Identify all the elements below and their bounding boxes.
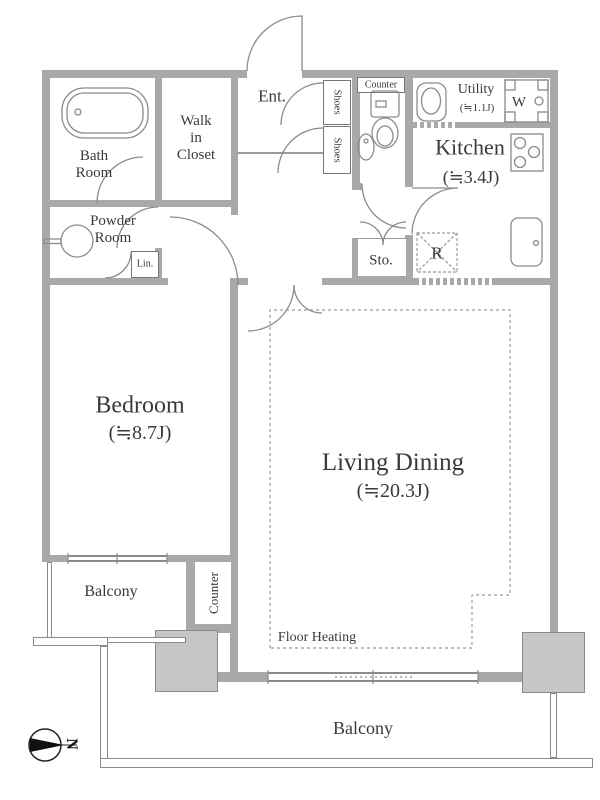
wall-bedroom-bottom-1 — [42, 555, 68, 562]
room-label-entrance: Ent. — [258, 86, 286, 105]
wall-top-left — [42, 70, 247, 78]
wall-bedroom-top — [42, 278, 168, 285]
pillar-right — [522, 632, 585, 693]
label-storage: Sto. — [369, 253, 393, 270]
wall-living-bottom-1 — [218, 672, 268, 682]
entrance-step-line — [238, 152, 323, 154]
label-floor-heating: Floor Heating — [278, 630, 356, 646]
wall-kitchen-left-upper — [405, 78, 413, 187]
balcony-left-rail — [47, 562, 52, 643]
window-ticks — [68, 553, 478, 684]
wall-wic-right — [231, 78, 238, 215]
room-label-bedroom: Bedroom — [95, 393, 184, 420]
room-label-kitchen-size: (≒3.4J) — [443, 167, 500, 187]
room-label-utility-size: (≒1.1J) — [460, 102, 495, 114]
wash-basin — [44, 225, 93, 257]
label-shoes-lower: Shoes — [332, 137, 343, 162]
wall-top-right — [302, 70, 558, 78]
wall-wc-bottom — [352, 183, 362, 190]
kitchen-sink — [511, 218, 542, 266]
label-linen: Lin. — [137, 258, 153, 269]
wall-living-bottom-2 — [478, 672, 522, 682]
wall-bath-bottom — [49, 200, 162, 207]
wall-utility-bottom — [457, 122, 550, 128]
room-label-powder: Powder Room — [90, 213, 136, 247]
wall-living-top-1 — [238, 278, 248, 285]
label-compass-north: N — [62, 738, 80, 750]
wall-wc-left — [352, 78, 360, 183]
stove — [511, 134, 543, 171]
entrance-door — [247, 16, 302, 71]
label-balcony-counter: Counter — [206, 572, 222, 614]
room-label-wic: Walk in Closet — [177, 113, 215, 163]
bathtub — [62, 88, 148, 138]
wc-hand-sink — [358, 134, 374, 160]
bedroom-door — [170, 217, 238, 285]
wall-living-top-3 — [495, 278, 558, 285]
toilet — [371, 91, 399, 148]
room-label-bedroom-size: (≒8.7J) — [109, 422, 172, 444]
shoes-door-upper — [281, 83, 323, 125]
utility-sink — [417, 83, 446, 121]
wall-utility-bottom-hatched — [413, 122, 457, 128]
room-label-living-size: (≒20.3J) — [357, 480, 430, 502]
wc-door — [362, 184, 406, 228]
label-wc-counter: Counter — [365, 79, 397, 90]
room-label-bath: Bath Room — [76, 148, 113, 182]
wall-right — [550, 78, 558, 632]
balcony-right-rail — [550, 693, 557, 758]
label-shoes-upper: Shoes — [332, 89, 343, 114]
wall-left — [42, 78, 50, 562]
label-washer: W — [512, 95, 526, 112]
shoes-door-lower — [278, 128, 323, 173]
room-label-living: Living Dining — [322, 449, 464, 477]
wall-bath-right — [155, 78, 162, 207]
balcony-ledge — [33, 637, 108, 646]
room-label-kitchen: Kitchen — [435, 136, 505, 161]
living-balcony-window — [268, 672, 478, 682]
label-balcony-left: Balcony — [84, 583, 137, 601]
floor-plan: Ent. Bath Room Walk in Closet Powder Roo… — [0, 0, 600, 800]
linen-door — [105, 252, 131, 278]
label-refrigerator: R — [431, 243, 442, 262]
bedroom-balcony-window — [68, 555, 167, 562]
label-balcony-bottom: Balcony — [333, 718, 393, 738]
living-door-small — [294, 285, 322, 313]
balcony-side-rail — [100, 646, 108, 763]
balcony-bottom-rail — [100, 758, 593, 768]
room-label-utility: Utility — [458, 82, 495, 98]
wall-kitchen-counter-hatched — [415, 278, 495, 285]
living-door-large — [248, 285, 294, 331]
wall-wic-bottom — [162, 200, 231, 207]
kitchen-door — [412, 188, 458, 234]
